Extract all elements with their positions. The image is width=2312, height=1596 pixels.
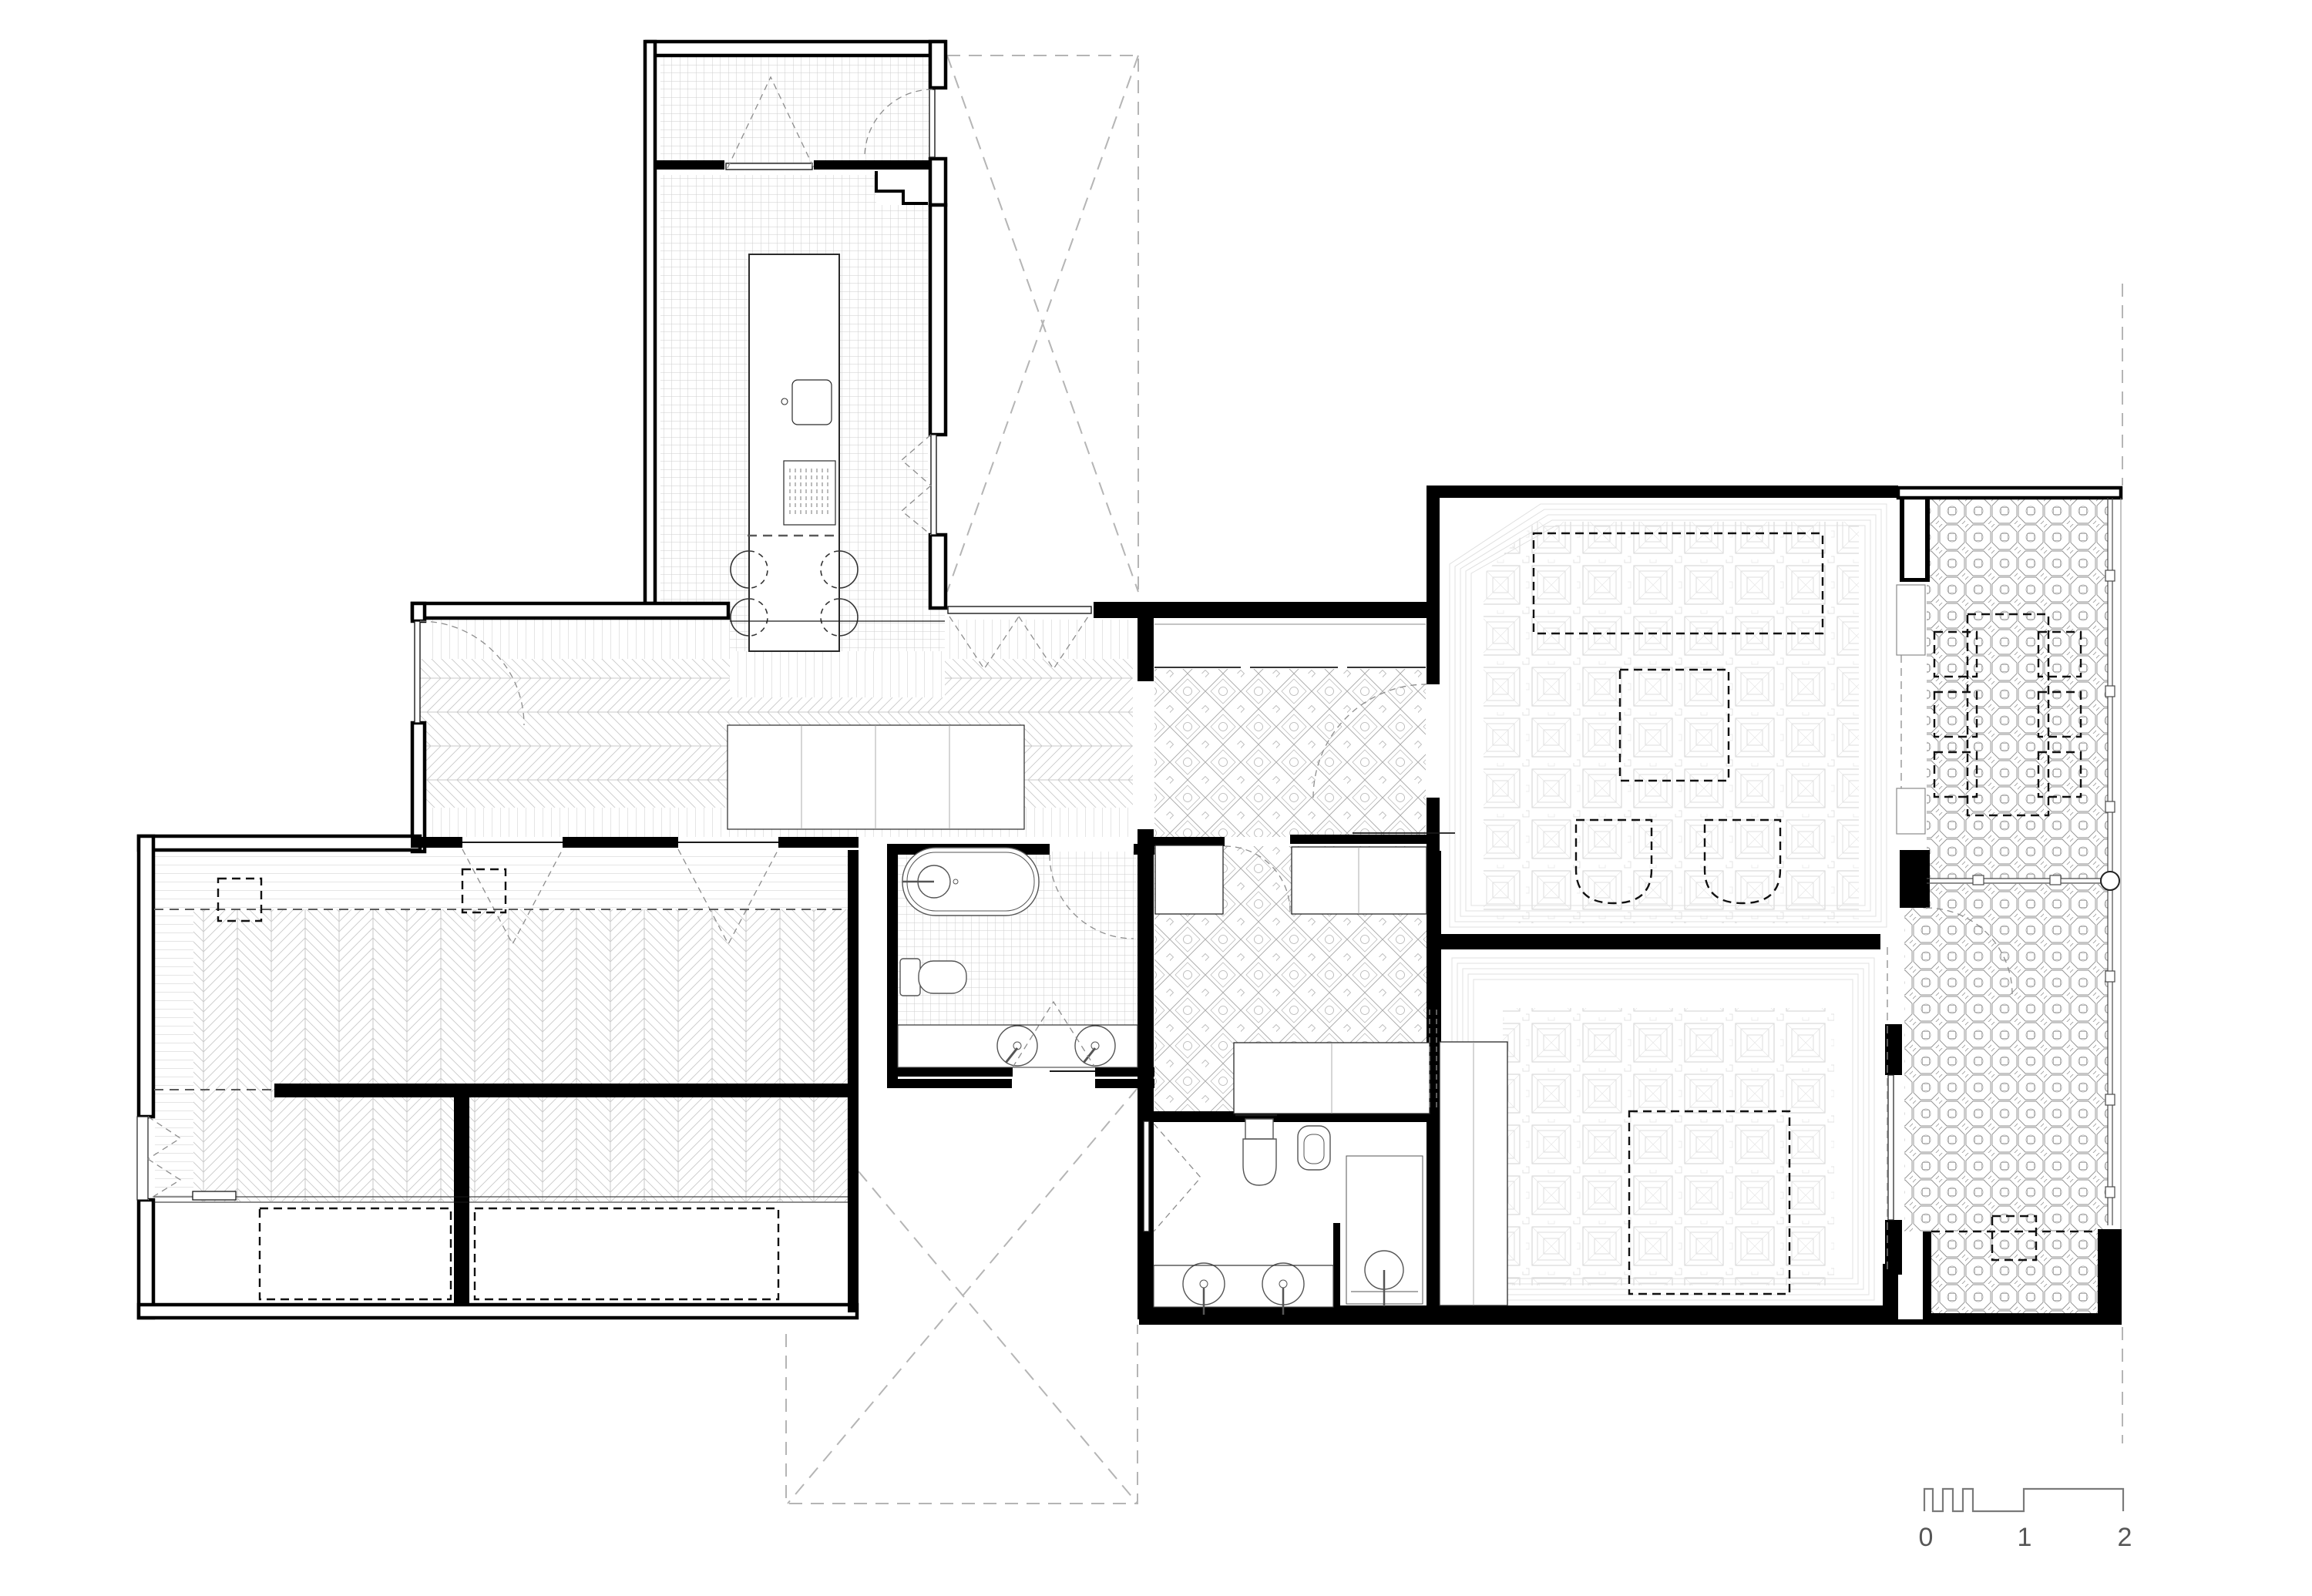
svg-text:1: 1 <box>2018 1523 2032 1552</box>
svg-text:2: 2 <box>2118 1523 2132 1552</box>
svg-text:0: 0 <box>1919 1523 1934 1552</box>
